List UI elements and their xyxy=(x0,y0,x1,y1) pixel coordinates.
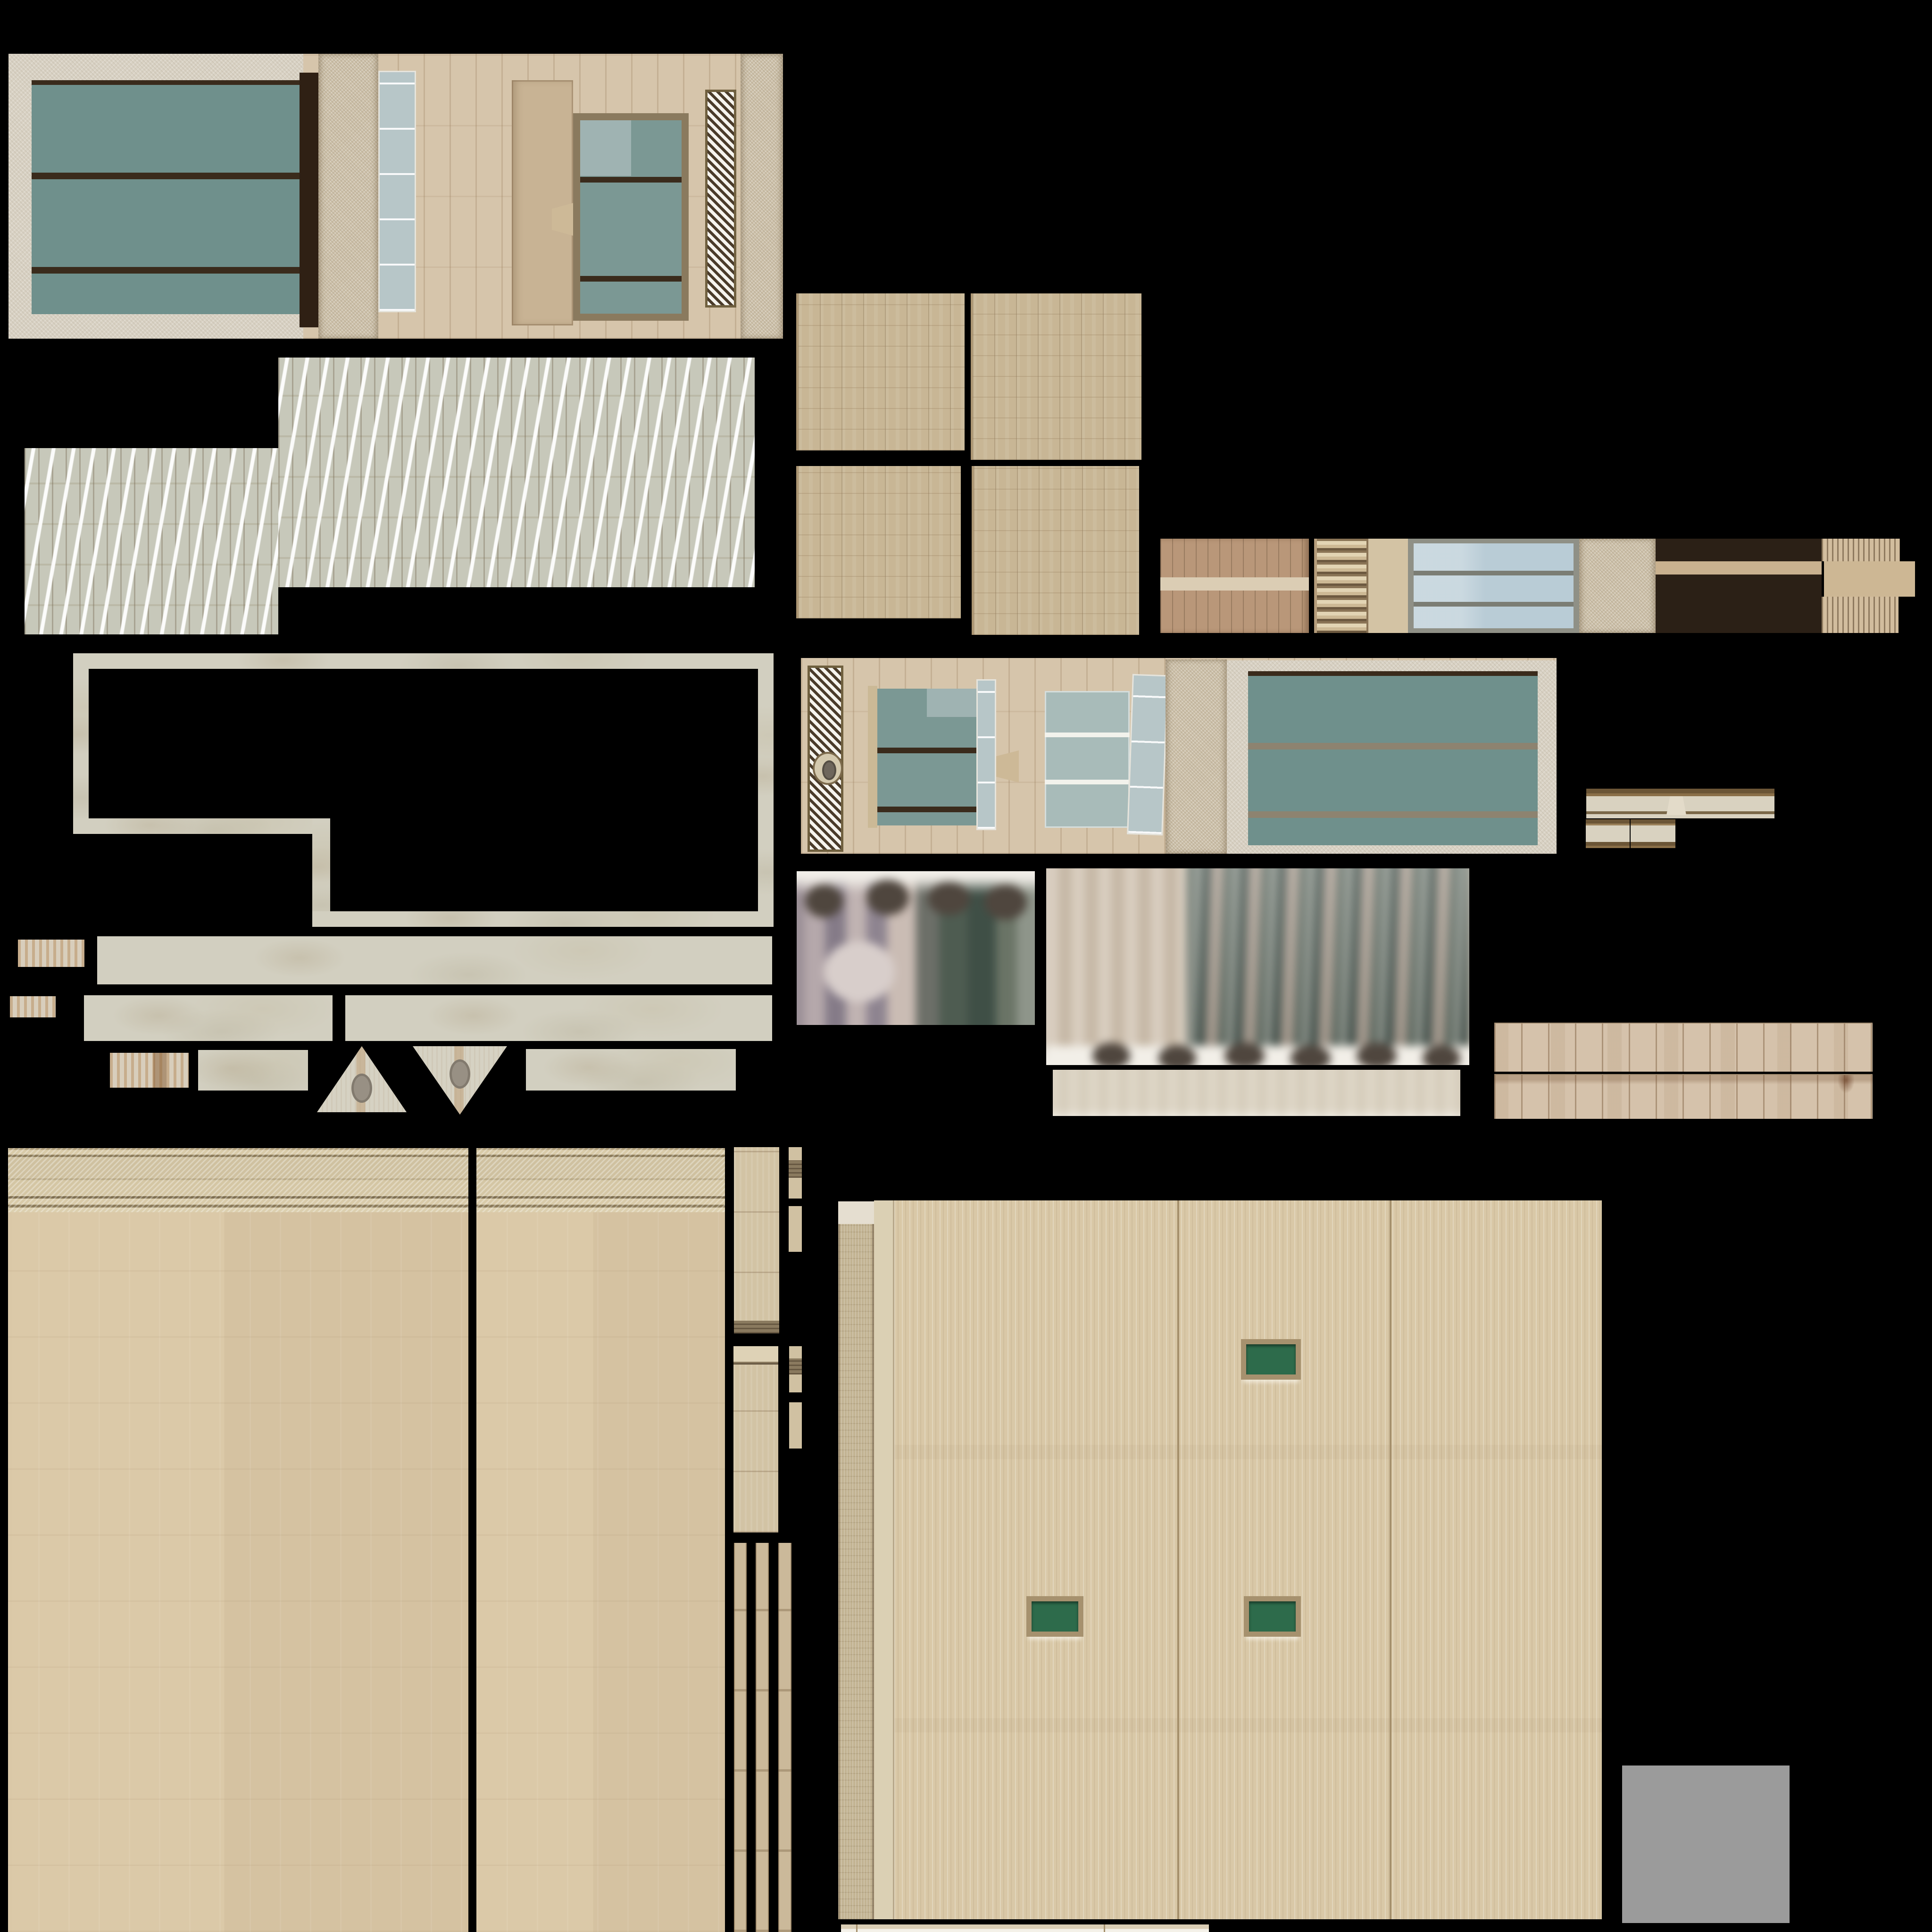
open-casement-pane xyxy=(976,679,996,830)
glass-muntin xyxy=(877,748,976,753)
molding-notch xyxy=(1666,796,1686,815)
glass-muntin xyxy=(1414,602,1574,607)
stripe-zone xyxy=(1046,868,1187,1047)
trim-outline-top xyxy=(73,653,774,669)
window-glass-pale xyxy=(1045,691,1130,828)
pier-base-band xyxy=(734,1321,779,1333)
edge-pilaster xyxy=(838,1201,874,1919)
base-strip-seam xyxy=(1104,1924,1105,1932)
green-vent xyxy=(1026,1596,1083,1637)
window-side-frame xyxy=(300,73,318,327)
light-oval xyxy=(824,941,895,1002)
stone-pilaster xyxy=(741,54,783,339)
foliage-zone xyxy=(1187,868,1469,1047)
pier-block xyxy=(733,1346,778,1532)
photo-blur-left xyxy=(797,871,1035,1025)
stone-pilaster xyxy=(1166,659,1227,854)
baluster-strip xyxy=(778,1543,791,1932)
trim-strip-mid xyxy=(84,995,333,1041)
wall-panel-narrow xyxy=(476,1148,725,1932)
plank-course xyxy=(1494,1023,1873,1072)
trim-strip-short xyxy=(198,1050,308,1091)
trim-strip-long xyxy=(97,936,772,984)
arch-blob xyxy=(1092,1043,1130,1065)
sill-bracket xyxy=(996,750,1019,783)
slat-block xyxy=(1822,539,1900,561)
blur-layer xyxy=(1046,868,1469,1065)
facade-strip-top xyxy=(8,54,783,339)
pediment-triangle-up xyxy=(317,1046,407,1112)
pier-tab xyxy=(789,1346,802,1392)
bay-window-stone-frame xyxy=(8,54,303,339)
detail-strip-ribbed xyxy=(1160,539,1309,633)
tab-band xyxy=(789,1358,802,1374)
pediment-oculus xyxy=(351,1074,372,1103)
stone-column-block xyxy=(1579,539,1656,633)
roof-shingles-right xyxy=(278,358,755,587)
open-casement-pane xyxy=(1127,674,1168,835)
brick-square xyxy=(971,293,1141,460)
glass-pane-light xyxy=(927,689,976,717)
bay-window-stone-frame xyxy=(1227,660,1557,854)
roof-shingles-left xyxy=(25,448,278,634)
glass-muntin xyxy=(580,276,682,282)
trim-striped-banded xyxy=(110,1053,189,1088)
green-vent xyxy=(1241,1339,1301,1380)
pilaster-cap xyxy=(838,1201,874,1224)
cornice-band xyxy=(8,1148,468,1212)
blue-window-glass xyxy=(1414,543,1574,628)
roof-notch-mask xyxy=(732,587,755,634)
pier-tab xyxy=(789,1206,802,1252)
sash-window-glass xyxy=(580,120,682,314)
green-vent xyxy=(1244,1596,1301,1637)
pier-top-line xyxy=(733,1362,778,1365)
glass-muntin xyxy=(1414,571,1574,575)
trim-outline-bottom xyxy=(312,911,774,927)
trim-striped-small xyxy=(18,940,84,967)
medallion-hole xyxy=(822,760,836,780)
pediment-triangle-down xyxy=(413,1046,507,1115)
glass-muntin xyxy=(877,807,976,812)
blue-window xyxy=(1408,539,1579,633)
atlas xyxy=(0,0,1932,1932)
glass-muntin xyxy=(1045,733,1130,737)
arch-blob xyxy=(805,884,843,917)
arch-blob xyxy=(1357,1043,1397,1065)
base-strip xyxy=(841,1924,1209,1932)
blur-layer xyxy=(797,871,1035,1025)
brick-square xyxy=(796,466,961,618)
photo-blur-right xyxy=(1046,868,1469,1065)
panel-seam xyxy=(1390,1200,1391,1919)
curtain-wall-glass xyxy=(1248,671,1538,845)
glass-muntin xyxy=(1045,780,1130,784)
sash-window-frame xyxy=(573,113,689,321)
window-stone-jamb xyxy=(868,686,877,828)
glass-muntin xyxy=(580,177,682,183)
molding-bar-short xyxy=(1586,819,1630,848)
grille-medallion xyxy=(813,752,843,785)
plank-course xyxy=(1494,1074,1873,1119)
ribbed-light-band xyxy=(1160,577,1309,591)
pier-cap-band xyxy=(733,1346,778,1362)
arch-blob xyxy=(866,880,909,915)
window-glass xyxy=(877,689,976,825)
tab-band xyxy=(789,1160,802,1178)
glass-muntin xyxy=(1248,811,1538,818)
molding-bar-long xyxy=(1586,789,1774,818)
wall-panel-wide xyxy=(838,1200,1602,1919)
trim-outline-step xyxy=(312,818,330,927)
dark-void-block xyxy=(1656,539,1822,633)
arch-blob xyxy=(928,882,970,915)
stone-pilaster xyxy=(318,54,378,339)
glass-muntin xyxy=(32,173,300,179)
trim-strip-wide xyxy=(526,1049,736,1091)
louver-grille xyxy=(705,90,736,308)
cornice-band xyxy=(476,1148,725,1212)
baluster-strip xyxy=(734,1543,747,1932)
slat-block xyxy=(1822,597,1899,633)
detail-strip-plain xyxy=(1368,539,1408,633)
edge-strip-light xyxy=(874,1200,894,1919)
trim-outline-right xyxy=(758,653,774,927)
trim-striped-small xyxy=(10,996,56,1017)
pier-tab xyxy=(789,1402,802,1449)
corbel-stack xyxy=(1314,539,1368,633)
panel-seam xyxy=(1177,1200,1179,1919)
glass-muntin xyxy=(32,267,300,274)
pediment-oculus xyxy=(450,1059,470,1089)
wall-panel-large xyxy=(8,1148,468,1932)
ledge-block xyxy=(1824,561,1915,597)
open-casement-pane xyxy=(378,71,416,312)
arch-blob xyxy=(1224,1043,1265,1065)
arch-blob xyxy=(984,884,1027,920)
curtain-wall-glass xyxy=(32,80,300,314)
window-recess xyxy=(512,80,573,325)
baluster-strip xyxy=(756,1543,769,1932)
glass-pane-light xyxy=(580,120,631,176)
trim-outline-left xyxy=(73,653,89,834)
pier-block xyxy=(734,1147,779,1333)
trim-strip-mid xyxy=(345,995,772,1041)
base-strip-seam xyxy=(856,1924,858,1932)
facade-strip-middle xyxy=(801,658,1557,854)
wall-field xyxy=(894,1200,1602,1919)
pier-tab xyxy=(789,1147,802,1199)
louver-grille-column xyxy=(808,666,843,852)
trim-outline-mid xyxy=(73,818,330,834)
photo-blur-strip xyxy=(1053,1070,1460,1116)
molding-bar-short xyxy=(1631,819,1675,848)
brick-square xyxy=(972,466,1139,635)
ledge-band xyxy=(1656,561,1822,575)
blur-layer xyxy=(1053,1070,1460,1116)
brick-square xyxy=(796,293,965,450)
gray-swatch xyxy=(1622,1765,1790,1923)
glass-muntin xyxy=(1248,743,1538,749)
